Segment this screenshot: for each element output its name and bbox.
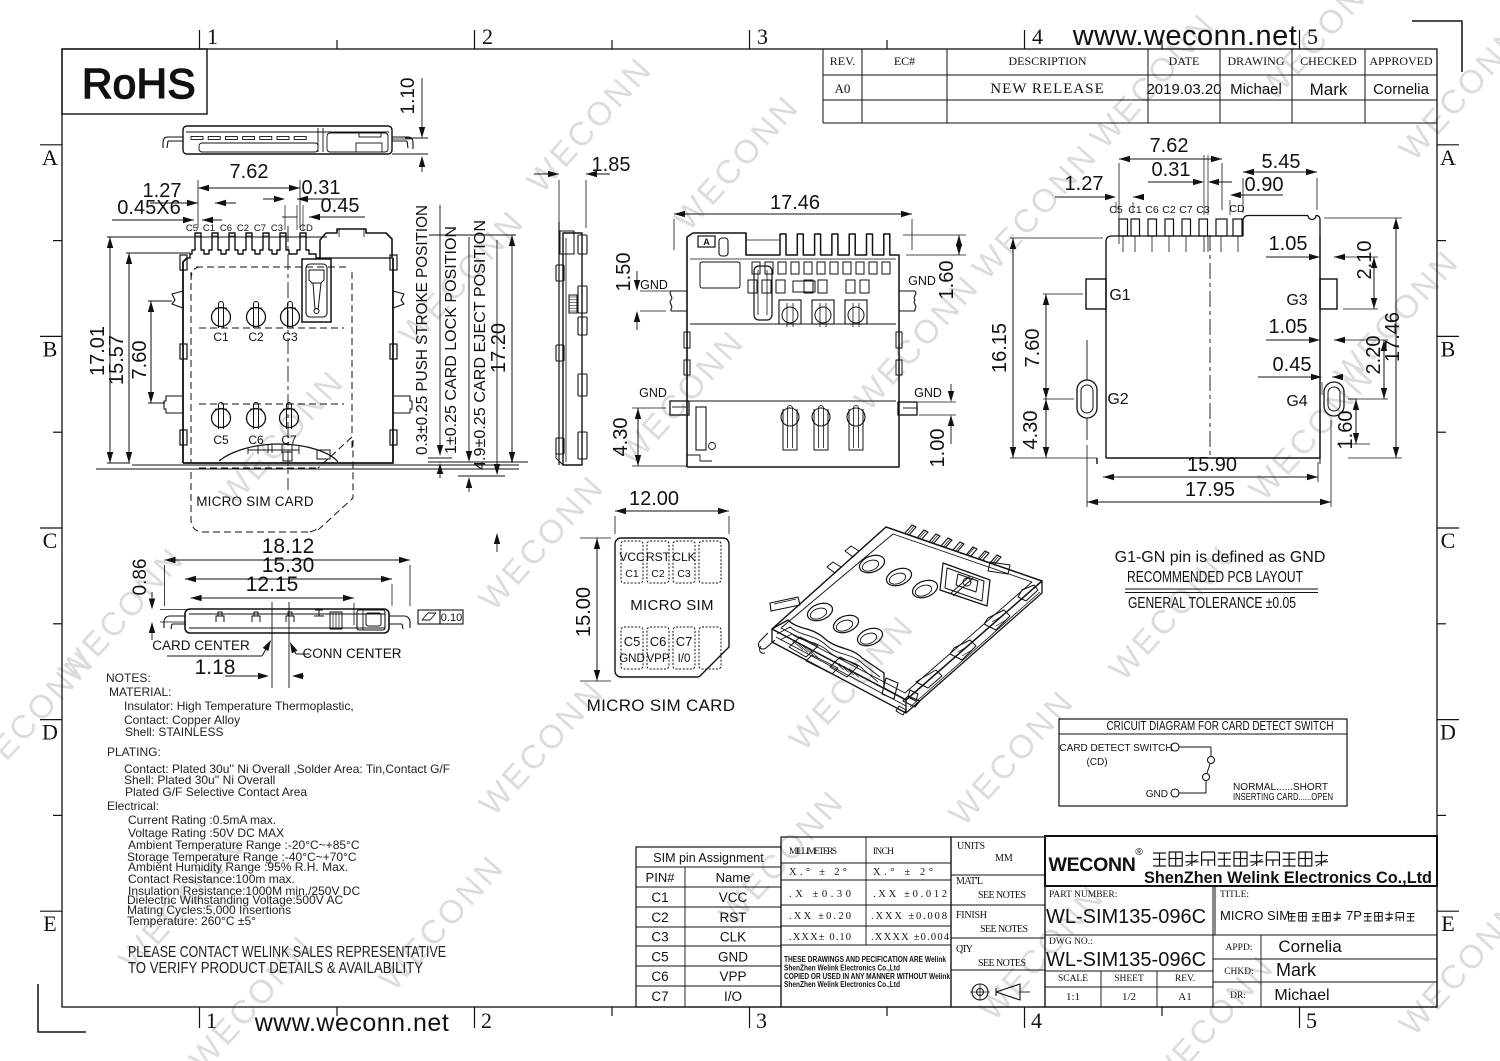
svg-text:17.46: 17.46 xyxy=(770,192,820,214)
svg-text:16.15: 16.15 xyxy=(989,323,1011,373)
svg-text:www.weconn.net: www.weconn.net xyxy=(1072,20,1298,52)
svg-text:MICRO SIM CARD: MICRO SIM CARD xyxy=(196,494,314,509)
svg-text:MICRO SIM: MICRO SIM xyxy=(630,597,714,614)
svg-text:G1: G1 xyxy=(1109,287,1130,304)
svg-text:C6: C6 xyxy=(1145,204,1159,216)
svg-text:Michael: Michael xyxy=(1230,81,1282,98)
svg-text:VPP: VPP xyxy=(719,969,746,984)
svg-text:0.86: 0.86 xyxy=(130,559,151,596)
svg-text:RoHS: RoHS xyxy=(82,60,196,107)
svg-text:DATE: DATE xyxy=(1169,54,1200,68)
svg-text:A1: A1 xyxy=(1178,991,1191,1003)
svg-text:MM: MM xyxy=(995,853,1013,864)
svg-text:7P: 7P xyxy=(1346,908,1362,923)
svg-text:I/0: I/0 xyxy=(678,653,691,665)
svg-text:SEE NOTES: SEE NOTES xyxy=(978,890,1026,901)
svg-text:.XXX± 0.10: .XXX± 0.10 xyxy=(789,932,851,943)
svg-text:.XX ±0.20: .XX ±0.20 xyxy=(789,911,851,922)
svg-text:0.90: 0.90 xyxy=(1245,174,1284,196)
svg-text:Name: Name xyxy=(716,870,751,885)
svg-text:C: C xyxy=(43,528,58,553)
svg-text:C5: C5 xyxy=(213,433,229,447)
svg-text:G4: G4 xyxy=(1286,393,1307,410)
svg-text:4.9±0.25 CARD EJECT POSITION: 4.9±0.25 CARD EJECT POSITION xyxy=(472,220,489,470)
svg-text:0.45: 0.45 xyxy=(321,195,360,217)
svg-text:.XXX ±0.008: .XXX ±0.008 xyxy=(871,911,947,922)
svg-text:Electrical:: Electrical: xyxy=(107,799,159,813)
svg-text:ShenZhen Welink Electronics Co: ShenZhen Welink Electronics Co.,Ltd xyxy=(1144,869,1432,887)
svg-text:CHKD:: CHKD: xyxy=(1224,967,1254,977)
svg-text:C2: C2 xyxy=(248,330,264,344)
svg-text:C3: C3 xyxy=(677,568,691,580)
svg-text:G3: G3 xyxy=(1286,292,1307,309)
svg-text:4.30: 4.30 xyxy=(1020,411,1042,450)
svg-text:www.weconn.net: www.weconn.net xyxy=(254,1009,450,1037)
svg-text:RST: RST xyxy=(720,910,747,925)
svg-text:SEE NOTES: SEE NOTES xyxy=(980,924,1028,935)
svg-text:®: ® xyxy=(1135,847,1143,858)
svg-text:0.3±0.25 PUSH STROKE POSITION: 0.3±0.25 PUSH STROKE POSITION xyxy=(414,205,431,455)
svg-text:C2: C2 xyxy=(651,568,665,580)
svg-text:1.27: 1.27 xyxy=(1065,173,1104,195)
svg-text:5: 5 xyxy=(1306,1008,1317,1033)
svg-text:C1: C1 xyxy=(213,330,229,344)
svg-text:GND: GND xyxy=(908,274,936,288)
svg-text:C1: C1 xyxy=(1128,204,1142,216)
svg-text:2: 2 xyxy=(482,24,493,49)
svg-text:DWG NO.:: DWG NO.: xyxy=(1049,937,1093,947)
svg-text:C1: C1 xyxy=(203,223,215,234)
svg-text:A: A xyxy=(42,145,58,170)
svg-text:MICRO SIM CARD: MICRO SIM CARD xyxy=(587,696,736,715)
svg-text:SHEET: SHEET xyxy=(1114,974,1144,984)
svg-text:5: 5 xyxy=(1307,24,1318,49)
svg-text:Mark: Mark xyxy=(1276,960,1317,980)
svg-text:12.15: 12.15 xyxy=(246,573,299,596)
svg-text:TO VERIFY PRODUCT DETAILS & AV: TO VERIFY PRODUCT DETAILS & AVAILABILITY xyxy=(128,960,423,977)
svg-text:C7: C7 xyxy=(1179,204,1193,216)
svg-text:Michael: Michael xyxy=(1274,987,1329,1004)
svg-text:CD: CD xyxy=(299,223,313,234)
svg-text:DESCRIPTION: DESCRIPTION xyxy=(1008,54,1086,68)
svg-text:Mark: Mark xyxy=(1310,80,1348,99)
svg-text:VPP: VPP xyxy=(646,653,669,665)
svg-text:Temperature: 260°C ±5°: Temperature: 260°C ±5° xyxy=(127,914,256,928)
svg-text:MAT'L: MAT'L xyxy=(956,876,983,887)
svg-text:RECOMMENDED PCB LAYOUT: RECOMMENDED PCB LAYOUT xyxy=(1127,569,1303,586)
svg-text:DR:: DR: xyxy=(1230,991,1246,1001)
svg-text:C1: C1 xyxy=(651,890,668,905)
svg-text:G1-GN pin is defined as GND: G1-GN pin is defined as GND xyxy=(1115,549,1326,566)
svg-text:MILLIMETERS: MILLIMETERS xyxy=(789,847,837,857)
svg-text:TITLE:: TITLE: xyxy=(1220,890,1249,900)
svg-text:7.60: 7.60 xyxy=(129,341,151,380)
svg-text:PLATING:: PLATING: xyxy=(107,745,161,759)
svg-text:Plated G/F Selective Contact A: Plated G/F Selective Contact Area xyxy=(125,785,307,799)
svg-text:MATERIAL:: MATERIAL: xyxy=(109,685,171,699)
svg-text:2: 2 xyxy=(481,1008,492,1033)
svg-text:17.20: 17.20 xyxy=(488,323,510,373)
svg-text:MICRO SIM: MICRO SIM xyxy=(1220,908,1290,923)
svg-text:C7: C7 xyxy=(254,223,266,234)
svg-text:4: 4 xyxy=(1031,1008,1042,1033)
svg-text:D: D xyxy=(42,720,58,745)
svg-text:CRICUIT DIAGRAM FOR CARD DETEC: CRICUIT DIAGRAM FOR CARD DETECT SWITCH xyxy=(1107,719,1334,733)
svg-text:VCC: VCC xyxy=(619,550,645,564)
svg-text:VCC: VCC xyxy=(719,890,748,905)
svg-text:RST: RST xyxy=(646,550,671,564)
svg-text:CLK: CLK xyxy=(672,550,695,564)
svg-text:DRAWING: DRAWING xyxy=(1227,54,1284,68)
svg-text:C6: C6 xyxy=(220,223,232,234)
svg-text:C5: C5 xyxy=(624,634,641,649)
svg-text:Cornelia: Cornelia xyxy=(1278,937,1342,956)
svg-text:1.05: 1.05 xyxy=(1269,233,1308,255)
svg-text:SIM pin Assignment: SIM pin Assignment xyxy=(653,851,764,865)
svg-text:7.60: 7.60 xyxy=(1022,329,1044,368)
svg-text:1: 1 xyxy=(206,1008,217,1033)
svg-text:5.45: 5.45 xyxy=(1262,151,1301,173)
svg-text:UNITS: UNITS xyxy=(957,841,985,852)
svg-text:15.90: 15.90 xyxy=(1187,454,1237,476)
svg-text:C5: C5 xyxy=(186,223,198,234)
svg-text:WL-SIM135-096C: WL-SIM135-096C xyxy=(1046,906,1206,928)
svg-text:ShenZhen Welink Electronics Co: ShenZhen Welink Electronics Co.,Ltd xyxy=(784,980,900,989)
svg-text:C3: C3 xyxy=(282,330,298,344)
svg-text:C6: C6 xyxy=(651,969,668,984)
svg-text:WL-SIM135-096C: WL-SIM135-096C xyxy=(1046,949,1206,971)
svg-text:2019.03.20: 2019.03.20 xyxy=(1146,81,1221,98)
svg-text:A: A xyxy=(1440,145,1456,170)
svg-text:WECONN: WECONN xyxy=(1048,854,1135,876)
svg-text:GND: GND xyxy=(639,386,667,400)
svg-text:C2: C2 xyxy=(1162,204,1176,216)
svg-text:1: 1 xyxy=(207,24,218,49)
svg-text:C: C xyxy=(1441,528,1456,553)
svg-text:INSERTING CARD......OPEN: INSERTING CARD......OPEN xyxy=(1233,792,1333,803)
svg-text:7.62: 7.62 xyxy=(230,161,269,183)
svg-text:1.85: 1.85 xyxy=(592,154,631,176)
svg-text:1.60: 1.60 xyxy=(936,261,958,300)
svg-text:Shell: STAINLESS: Shell: STAINLESS xyxy=(125,725,223,739)
svg-text:PART NUMBER:: PART NUMBER: xyxy=(1049,890,1117,900)
svg-text:A0: A0 xyxy=(835,81,851,96)
svg-text:0.10: 0.10 xyxy=(441,612,462,624)
svg-text:C3: C3 xyxy=(271,223,283,234)
svg-text:C1: C1 xyxy=(625,568,639,580)
svg-text:15.00: 15.00 xyxy=(573,587,595,637)
svg-text:SCALE: SCALE xyxy=(1058,974,1088,984)
svg-text:CONN CENTER: CONN CENTER xyxy=(302,646,401,661)
svg-text:APPROVED: APPROVED xyxy=(1369,54,1433,68)
svg-text:GENERAL TOLERANCE ±0.05: GENERAL TOLERANCE ±0.05 xyxy=(1128,595,1296,612)
svg-text:0.45X6: 0.45X6 xyxy=(117,197,180,219)
svg-text:G2: G2 xyxy=(1107,391,1128,408)
svg-text:17.46: 17.46 xyxy=(1382,312,1404,362)
svg-text:GND: GND xyxy=(718,949,748,964)
svg-text:APPD:: APPD: xyxy=(1226,943,1253,953)
svg-text:C6: C6 xyxy=(650,634,667,649)
svg-text:1±0.25 CARD LOCK POSITION: 1±0.25 CARD LOCK POSITION xyxy=(443,226,460,454)
svg-text:CHECKED: CHECKED xyxy=(1300,54,1357,68)
svg-text:INCH: INCH xyxy=(873,847,894,857)
svg-text:C5: C5 xyxy=(651,949,668,964)
svg-text:1.05: 1.05 xyxy=(1269,316,1308,338)
svg-text:2.10: 2.10 xyxy=(1354,241,1376,280)
svg-text:15.57: 15.57 xyxy=(106,335,128,385)
svg-text:GND: GND xyxy=(640,278,668,292)
svg-text:EC#: EC# xyxy=(894,54,915,68)
svg-text:CARD CENTER: CARD CENTER xyxy=(152,638,250,653)
svg-text:4.30: 4.30 xyxy=(610,418,632,457)
svg-text:1/2: 1/2 xyxy=(1122,991,1136,1003)
svg-text:B: B xyxy=(1441,336,1456,361)
svg-text:Cornelia: Cornelia xyxy=(1373,81,1430,98)
svg-text:FINISH: FINISH xyxy=(956,910,987,921)
svg-text:1.00: 1.00 xyxy=(927,429,949,468)
svg-text:E: E xyxy=(43,911,56,936)
svg-text:PIN#: PIN# xyxy=(646,870,676,885)
svg-text:0.31: 0.31 xyxy=(1152,159,1191,181)
svg-text:17.95: 17.95 xyxy=(1185,479,1235,501)
svg-text:PLEASE CONTACT WELINK SALES RE: PLEASE CONTACT WELINK SALES REPRESENTATI… xyxy=(128,944,446,961)
svg-text:1.10: 1.10 xyxy=(398,78,419,115)
svg-text:CLK: CLK xyxy=(720,930,746,945)
svg-text:I/O: I/O xyxy=(724,989,742,1004)
svg-text:REV.: REV. xyxy=(1175,974,1195,984)
svg-text:3: 3 xyxy=(756,1008,767,1033)
svg-text:E: E xyxy=(1441,911,1454,936)
svg-text:1:1: 1:1 xyxy=(1066,991,1080,1003)
svg-text:GND: GND xyxy=(1146,789,1168,800)
svg-text:Current Rating :0.5mA max.: Current Rating :0.5mA max. xyxy=(128,813,276,827)
svg-text:QTY: QTY xyxy=(956,944,973,955)
svg-text:12.00: 12.00 xyxy=(629,488,679,510)
svg-text:D: D xyxy=(1440,720,1456,745)
svg-text:3: 3 xyxy=(757,24,768,49)
svg-text:C3: C3 xyxy=(651,930,668,945)
svg-text:0.45: 0.45 xyxy=(1273,354,1312,376)
svg-text:7.62: 7.62 xyxy=(1150,135,1189,157)
svg-text:C7: C7 xyxy=(676,634,693,649)
svg-text:C7: C7 xyxy=(651,989,668,1004)
svg-text:GND: GND xyxy=(914,386,942,400)
svg-text:A: A xyxy=(703,237,710,247)
svg-text:NOTES:: NOTES: xyxy=(106,671,151,685)
svg-text:4: 4 xyxy=(1032,24,1043,49)
svg-text:(CD): (CD) xyxy=(1086,757,1107,768)
svg-text:GND: GND xyxy=(619,653,645,665)
svg-text:SEE NOTES: SEE NOTES xyxy=(978,958,1026,969)
svg-text:C2: C2 xyxy=(651,910,668,925)
svg-text:.XXXX ±0.004: .XXXX ±0.004 xyxy=(871,932,950,943)
svg-text:CARD DETECT SWITCH: CARD DETECT SWITCH xyxy=(1059,743,1172,754)
svg-text:1.50: 1.50 xyxy=(613,253,635,292)
svg-text:REV.: REV. xyxy=(830,54,855,68)
svg-text:NEW RELEASE: NEW RELEASE xyxy=(990,81,1104,97)
svg-text:C2: C2 xyxy=(237,223,249,234)
svg-text:B: B xyxy=(43,336,58,361)
svg-text:Insulator: High Temperature Th: Insulator: High Temperature Thermoplasti… xyxy=(124,699,354,713)
